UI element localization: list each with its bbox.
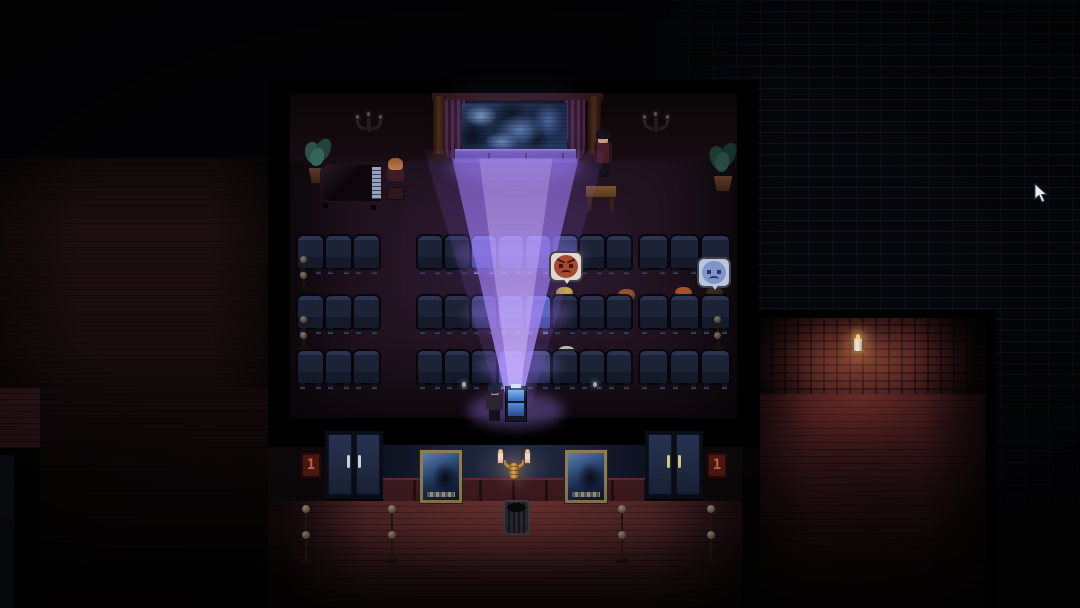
plant-leaf	[715, 152, 730, 172]
plant-pot	[712, 176, 734, 191]
theater-seat	[671, 236, 698, 268]
candle-flame-icon	[498, 449, 503, 454]
theater-wall-sconce-left	[356, 112, 382, 136]
projectionist-body	[486, 393, 503, 410]
sconce-arm	[372, 120, 382, 130]
projectionist-character	[482, 383, 506, 422]
sconce-arm	[356, 120, 366, 130]
candle-flame-icon	[643, 115, 646, 119]
wall-light	[462, 382, 466, 387]
candle-flame-icon	[654, 112, 657, 116]
sconce-stem	[367, 118, 371, 132]
pianist-head	[388, 158, 403, 170]
left-lower-floor	[40, 388, 268, 608]
theater-seat	[326, 236, 351, 268]
door-handle	[358, 455, 361, 468]
plant-leaf	[309, 148, 324, 167]
theater-seat	[418, 236, 442, 268]
theater-seat	[418, 351, 442, 383]
projectionist-hair	[488, 383, 501, 394]
projectionist-legs	[489, 410, 500, 421]
movie-poster-right	[565, 450, 607, 503]
sconce-arm	[643, 120, 653, 130]
lobby-right-wall-gap	[742, 447, 760, 608]
piano-leg	[323, 203, 328, 208]
candle-flame-icon	[666, 115, 669, 119]
door-handle	[347, 455, 350, 468]
emote-bubble-sad	[697, 257, 731, 288]
candle-flame-icon	[379, 115, 382, 119]
double-door-left[interactable]	[325, 431, 383, 499]
candle-flame-icon	[356, 115, 359, 119]
theater-seat	[671, 351, 698, 383]
lamp-flame-icon	[856, 334, 860, 339]
lobby-candle-sconce	[496, 452, 532, 480]
theater-seat	[580, 296, 604, 328]
usher-hair	[596, 129, 610, 139]
projector-reel-window	[508, 390, 524, 401]
theater-seat	[298, 351, 323, 383]
theater-seat	[445, 351, 469, 383]
theater-seat	[418, 296, 442, 328]
piano-leg	[371, 205, 376, 210]
theater-wall-sconce-right	[643, 112, 669, 136]
right-room-floor	[760, 394, 986, 608]
projector-lens	[511, 384, 521, 388]
candle-flame-icon	[525, 449, 530, 454]
door-handle	[678, 455, 681, 468]
theater-seat	[580, 351, 604, 383]
theater-seat	[640, 236, 667, 268]
theater-seat	[326, 296, 351, 328]
theater-seat	[354, 236, 379, 268]
screen-number-sign-right: 1	[707, 453, 727, 478]
theater-wall-right	[737, 80, 758, 418]
theater-wall-top	[268, 80, 758, 94]
sconce-base	[509, 463, 519, 479]
theater-seat	[354, 351, 379, 383]
theater-seat	[702, 351, 729, 383]
theater-seat	[607, 236, 631, 268]
theater-seat	[607, 296, 631, 328]
pianist-character	[387, 158, 405, 184]
double-door-right[interactable]	[645, 431, 703, 499]
trash-can	[503, 500, 530, 535]
film-projector	[505, 386, 527, 422]
movie-poster-left	[420, 450, 462, 503]
right-room-brick-wall	[760, 318, 986, 394]
left-edge-object	[0, 455, 14, 608]
screen-number-sign-left: 1	[301, 453, 321, 478]
left-floor-strip	[0, 388, 40, 448]
door-handle	[667, 455, 670, 468]
movie-screen	[462, 103, 567, 149]
candle-stand	[299, 256, 309, 290]
theater-seat	[607, 351, 631, 383]
theater-seat	[326, 351, 351, 383]
sconce-arm	[659, 120, 669, 130]
lamp-candle	[854, 338, 862, 351]
piano-bench	[387, 187, 404, 200]
stanchion-pole	[617, 505, 627, 563]
candle-flame-icon	[367, 112, 370, 116]
sconce-stem	[654, 118, 658, 132]
stanchion-pole	[706, 505, 716, 563]
projector-reel-window	[508, 403, 524, 416]
stanchion-pole	[387, 505, 397, 563]
right-room	[758, 310, 996, 608]
theater-seat	[640, 351, 667, 383]
table-leg	[610, 197, 614, 211]
theater-seat	[354, 296, 379, 328]
theater-wall-left	[268, 80, 290, 418]
theater-seat	[671, 296, 698, 328]
wall-candle-lamp	[852, 337, 864, 355]
wall-light	[593, 382, 597, 387]
potted-plant-right	[708, 140, 738, 192]
theater-seat	[640, 296, 667, 328]
game-viewport[interactable]: 1 1	[0, 0, 1080, 608]
candle-stand	[713, 316, 723, 350]
piano-keys	[372, 167, 381, 199]
left-room-floor	[0, 158, 268, 390]
stanchion-pole	[301, 505, 311, 563]
emote-bubble-angry	[549, 251, 583, 282]
candle-stand	[299, 316, 309, 350]
